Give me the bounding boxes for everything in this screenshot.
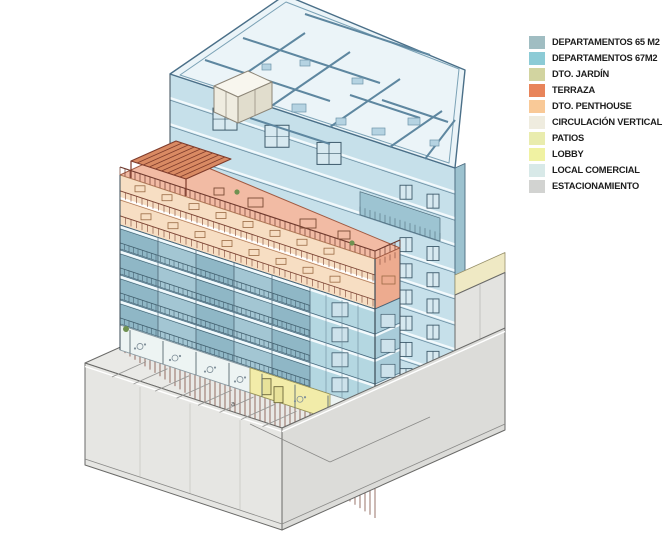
legend-item-label: DTO. PENTHOUSE [552,100,632,113]
legend-color-swatch [529,52,545,65]
legend-color-swatch [529,100,545,113]
legend-item-circulacion-vertical: CIRCULACIÓN VERTICAL [529,116,665,129]
deck-ramp-label: a [231,401,235,408]
legend-color-swatch [529,116,545,129]
legend-item-lobby: LOBBY [529,148,665,161]
legend-item-label: LOBBY [552,148,584,161]
legend-item-label: CIRCULACIÓN VERTICAL [552,116,662,129]
legend: DEPARTAMENTOS 65 M2 DEPARTAMENTOS 67M2 D… [529,36,665,196]
legend-item-label: TERRAZA [552,84,595,97]
legend-color-swatch [529,36,545,49]
legend-item-label: PATIOS [552,132,584,145]
legend-item-label: DEPARTAMENTOS 67M2 [552,52,657,65]
legend-item-patios: PATIOS [529,132,665,145]
legend-item-dto-jardin: DTO. JARDÍN [529,68,665,81]
legend-color-swatch [529,132,545,145]
legend-color-swatch [529,84,545,97]
legend-color-swatch [529,164,545,177]
legend-item-local-comercial: LOCAL COMERCIAL [529,164,665,177]
legend-item-estacionamiento: ESTACIONAMIENTO [529,180,665,193]
legend-color-swatch [529,148,545,161]
legend-item-label: DEPARTAMENTOS 65 M2 [552,36,660,49]
legend-item-terraza: TERRAZA [529,84,665,97]
legend-item-label: ESTACIONAMIENTO [552,180,639,193]
legend-item-departamentos-65-m2: DEPARTAMENTOS 65 M2 [529,36,665,49]
legend-item-departamentos-67m2: DEPARTAMENTOS 67M2 [529,52,665,65]
legend-item-label: DTO. JARDÍN [552,68,609,81]
legend-color-swatch [529,68,545,81]
legend-item-label: LOCAL COMERCIAL [552,164,640,177]
legend-item-dto-penthouse: DTO. PENTHOUSE [529,100,665,113]
legend-color-swatch [529,180,545,193]
figure-canvas: a DEPARTAMENTOS 65 M2 DEPARTAMENTOS 67M2… [0,0,666,538]
